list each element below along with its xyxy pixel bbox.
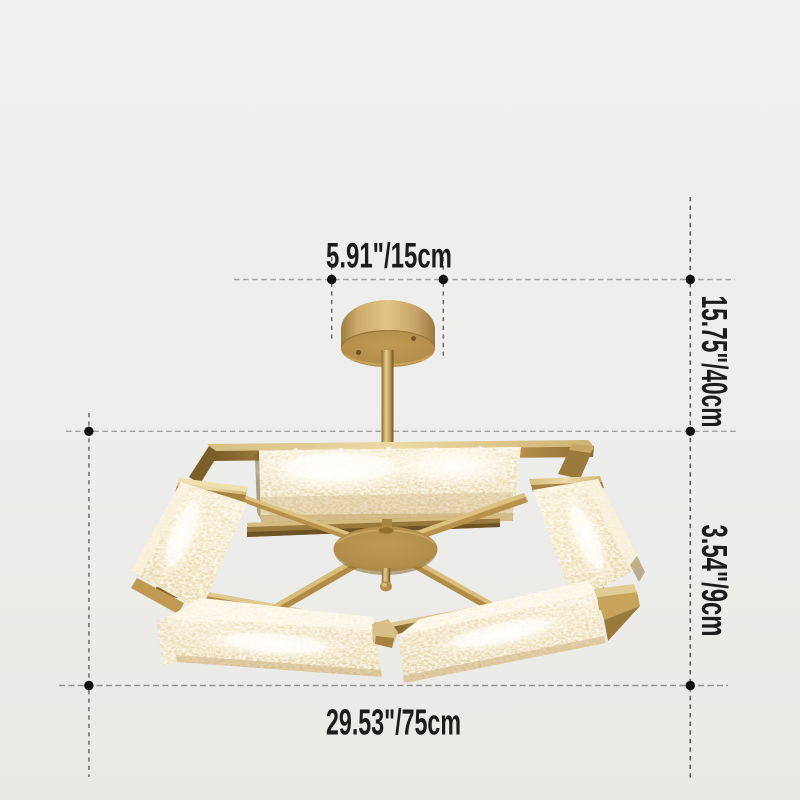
svg-text:15.75"/40cm: 15.75"/40cm [694, 296, 735, 428]
svg-text:3.54"/9cm: 3.54"/9cm [694, 525, 735, 637]
svg-text:29.53"/75cm: 29.53"/75cm [326, 702, 461, 743]
svg-text:5.91"/15cm: 5.91"/15cm [326, 237, 452, 276]
